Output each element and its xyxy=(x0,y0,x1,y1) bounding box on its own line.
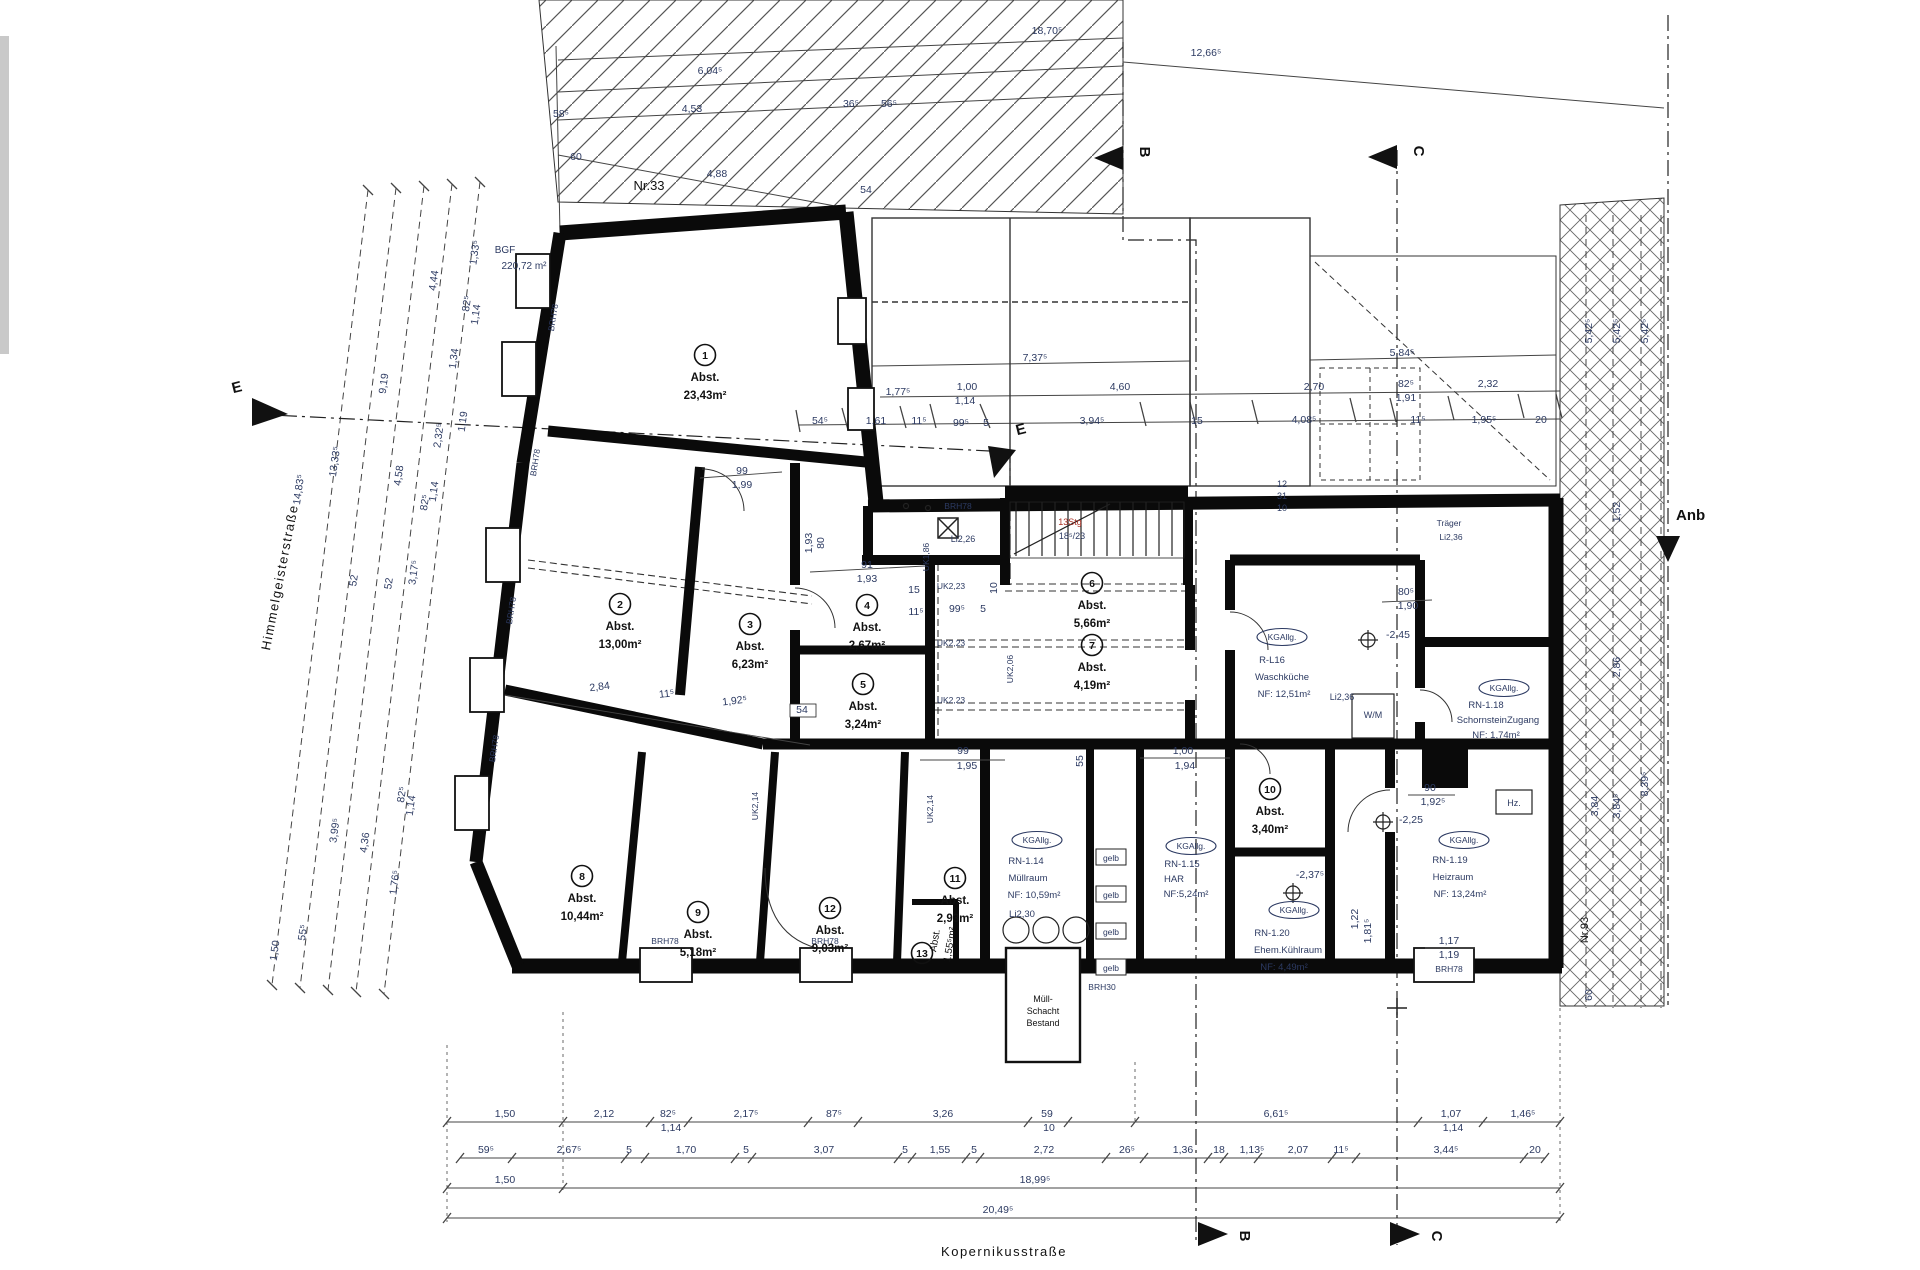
dim-label: 5,42⁵ xyxy=(1611,319,1623,344)
floor-plan-canvas: Himmelgeisterstraße Kopernikusstraße Anb… xyxy=(0,0,1920,1270)
note-label: gelb xyxy=(1103,853,1119,863)
section-marker-E: E xyxy=(230,378,288,426)
dim-label: 2,84 xyxy=(589,680,611,694)
dim-label: 6,04⁵ xyxy=(698,65,723,77)
dim-label: 5,84⁵ xyxy=(1390,347,1415,359)
room-number: 12 xyxy=(824,903,836,915)
dim-label: 6,61⁵ xyxy=(1264,1108,1289,1120)
dim-label: 80⁵ xyxy=(1398,586,1414,598)
dim-label: 4,58 xyxy=(392,464,407,486)
dim-label: 1,99 xyxy=(732,479,753,491)
space-line: NF: 4,49m² xyxy=(1260,962,1308,973)
dim-label: 15 xyxy=(908,584,920,596)
dim-label: 4,88 xyxy=(707,168,728,180)
space-label: KGAllg.RN-1.19HeizraumNF: 13,24m² xyxy=(1432,832,1489,901)
dim-label: 1,36 xyxy=(1173,1144,1194,1156)
dim-label: 52 xyxy=(382,577,396,590)
dim-label: 90 xyxy=(1424,782,1436,794)
dim-label: 11⁵ xyxy=(1333,1144,1348,1156)
note-label: gelb xyxy=(1103,927,1119,937)
dim-label: 1,50 xyxy=(268,939,283,961)
room-area: 13,00m² xyxy=(599,639,642,651)
valve-symbol xyxy=(1373,812,1393,832)
room-type: Abst. xyxy=(1078,600,1107,612)
space-line: Heizraum xyxy=(1433,872,1474,883)
room-type: Abst. xyxy=(684,929,713,941)
dim-label: 1,19 xyxy=(1439,949,1460,961)
dim-label: 1,00 xyxy=(1173,745,1194,757)
kg-allg-label: KGAllg. xyxy=(1023,835,1052,845)
dim-label: 55⁵ xyxy=(296,924,310,942)
room-area: 3,40m² xyxy=(1252,824,1289,836)
note-label: Li2,36 xyxy=(1439,532,1462,542)
space-line: RN-1.18 xyxy=(1468,700,1503,711)
courtyard-structures xyxy=(872,218,1556,486)
dim-label: 2,32 xyxy=(1478,378,1499,390)
kg-allg-label: KGAllg. xyxy=(1280,905,1309,915)
dim-label: 1,90 xyxy=(1398,600,1419,612)
dim-label: 2,72 xyxy=(1034,1144,1055,1156)
room-area: 2,93m² xyxy=(937,913,974,925)
dim-label: 1,19 xyxy=(456,410,471,432)
dim-label: 4,53 xyxy=(682,103,703,115)
dim-label: 11⁵ xyxy=(911,415,926,427)
dim-label: 59⁵ xyxy=(478,1144,494,1156)
room-label: 6Abst.5,66m² xyxy=(1074,573,1111,631)
room-type: Abst. xyxy=(816,925,845,937)
space-line: NF: 1,74m² xyxy=(1472,730,1520,741)
room-number: 3 xyxy=(747,619,753,631)
room-label: 7Abst.4,19m² xyxy=(1074,635,1111,693)
kg-allg-label: KGAllg. xyxy=(1450,835,1479,845)
note-label: UK1,86 xyxy=(921,543,931,572)
space-line: R-L16 xyxy=(1259,655,1285,666)
dim-label: 52 xyxy=(347,574,361,587)
dim-label: 2,17⁵ xyxy=(734,1108,759,1120)
dim-label: 1,14 xyxy=(469,303,484,325)
dim-label: 20,49⁵ xyxy=(983,1204,1014,1216)
dim-label: 54 xyxy=(860,184,872,196)
dim-label: 82⁵ xyxy=(660,1108,676,1120)
scrollbar-sliver[interactable] xyxy=(0,36,9,354)
room-label: 10Abst.3,40m² xyxy=(1252,779,1289,837)
section-marker-arrow xyxy=(988,446,1016,478)
dim-label: 54 xyxy=(796,704,808,716)
section-marker-letter: B xyxy=(1236,1231,1253,1242)
room-label: 2Abst.13,00m² xyxy=(599,594,642,652)
room-area: 4,19m² xyxy=(1074,680,1111,692)
dim-label: 1,91 xyxy=(1396,392,1417,404)
dim-label: 1,00 xyxy=(957,381,978,393)
room-label: 12Abst.9,03m² xyxy=(812,898,849,956)
dim-label: 12 xyxy=(1277,479,1287,489)
dim-label: 11⁵ xyxy=(658,687,675,701)
dim-label: 3,94⁵ xyxy=(1080,415,1105,427)
dim-label: 1,95 xyxy=(957,760,978,772)
dim-label: 1,95⁵ xyxy=(1472,414,1497,426)
dim-label: 59 xyxy=(1041,1108,1053,1120)
note-label: UK2,14 xyxy=(750,792,760,821)
room-type: Abst. xyxy=(691,372,720,384)
dim-label: 1,52 xyxy=(1611,502,1623,523)
dim-label: 54⁵ xyxy=(812,415,828,427)
valve-symbol xyxy=(1358,630,1378,650)
room-number: 8 xyxy=(579,871,585,883)
space-label: KGAllg.RN-1.18SchornsteinZugangNF: 1,74m… xyxy=(1457,680,1539,742)
dim-label: 1,14 xyxy=(404,794,419,816)
room-label: 4Abst.2,67m² xyxy=(849,595,886,653)
dim-label: 1,17 xyxy=(1439,935,1460,947)
dim-label: 5 xyxy=(983,417,989,429)
dim-label: 1,81⁵ xyxy=(1362,919,1374,944)
dim-label: 13,33⁵ xyxy=(327,446,343,478)
space-line: RN-1.14 xyxy=(1008,856,1043,867)
space-line: Li2,30 xyxy=(1009,909,1035,920)
room-number: 9 xyxy=(695,907,701,919)
kg-allg-label: KGAllg. xyxy=(1490,683,1519,693)
note-label: Abst. xyxy=(928,928,943,952)
note-label: Nr.33 xyxy=(633,178,664,193)
note-label: gelb xyxy=(1103,963,1119,973)
note-label: BRH78 xyxy=(1435,964,1463,974)
dim-label: 1,50 xyxy=(495,1108,516,1120)
room-area: 6,23m² xyxy=(732,659,769,671)
dim-label: 3,84⁵ xyxy=(1611,794,1623,819)
dim-label: 60 xyxy=(1583,989,1595,1001)
dim-label: 82⁵ xyxy=(1398,378,1414,390)
space-label: KGAllg.R-L16WaschkücheNF: 12,51m² xyxy=(1255,629,1310,701)
annex-label: Anb xyxy=(1676,507,1705,524)
dim-label: 99⁵ xyxy=(949,603,965,615)
space-label: KGAllg.RN-1.15HARNF:5,24m² xyxy=(1164,838,1216,901)
valve-symbol xyxy=(1283,883,1303,903)
dim-label: 15 xyxy=(1191,415,1203,427)
dim-label: 91 xyxy=(861,559,873,571)
section-marker-letter: E xyxy=(230,378,244,397)
dim-label: 58⁵ xyxy=(553,108,569,120)
dim-label: 2,32⁵ xyxy=(431,422,446,448)
note-label: W/M xyxy=(1364,710,1383,720)
section-marker-letter: B xyxy=(1136,147,1153,158)
dim-label: 56⁵ xyxy=(881,98,897,110)
dim-label: 5 xyxy=(902,1144,908,1156)
note-label: BRH78 xyxy=(944,501,972,511)
dim-label: 5 xyxy=(971,1144,977,1156)
room-area: 10,44m² xyxy=(561,911,604,923)
dim-label: 5 xyxy=(626,1144,632,1156)
dim-label: 1,46⁵ xyxy=(1511,1108,1536,1120)
note-label: BGF xyxy=(495,245,516,256)
dim-label: 3,26 xyxy=(933,1108,954,1120)
windows xyxy=(455,254,1474,1062)
section-marker-letter: C xyxy=(1428,1231,1445,1242)
room-type: Abst. xyxy=(736,641,765,653)
note-label: Müll- xyxy=(1033,994,1053,1004)
note-label: UK2,23 xyxy=(937,695,966,705)
dim-label: 18,70⁵ xyxy=(1032,25,1063,37)
note-label: UK2,06 xyxy=(1005,655,1015,684)
dim-label: 10 xyxy=(1043,1122,1055,1134)
room-number: 11 xyxy=(949,873,960,885)
dim-label: 4,08⁵ xyxy=(1292,414,1317,426)
dim-label: 20 xyxy=(1529,1144,1541,1156)
space-line: RN-1.15 xyxy=(1164,859,1199,870)
dim-label: 1,34 xyxy=(447,347,462,369)
space-line: HAR xyxy=(1164,874,1184,885)
dim-label: 2,70 xyxy=(1304,381,1325,393)
dim-label: 1,76⁵ xyxy=(387,869,402,895)
dim-label: -2,37⁵ xyxy=(1296,869,1324,881)
dim-label: 1,93 xyxy=(803,533,815,554)
note-label: UK2,14 xyxy=(925,795,935,824)
note-label: Li2,36 xyxy=(1330,692,1355,702)
dim-label: 1,50 xyxy=(495,1174,516,1186)
dim-label: 10 xyxy=(1277,503,1287,513)
dim-label: 1,13⁵ xyxy=(1240,1144,1265,1156)
note-label: UK2,23 xyxy=(937,638,966,648)
dim-label: 5 xyxy=(743,1144,749,1156)
dim-label: 3,07 xyxy=(814,1144,835,1156)
dim-label: 2,86 xyxy=(1611,657,1623,678)
note-label: Hz. xyxy=(1507,798,1521,808)
space-line: RN-1.20 xyxy=(1254,928,1289,939)
dim-label: -2,45 xyxy=(1386,629,1410,641)
room-area: 5,66m² xyxy=(1074,618,1111,630)
room-type: Abst. xyxy=(1256,806,1285,818)
note-label: UK2,23 xyxy=(937,581,966,591)
note-label: gelb xyxy=(1103,890,1119,900)
room-label: 8Abst.10,44m² xyxy=(561,866,604,924)
room-number: 2 xyxy=(617,599,623,611)
dim-label: 1,07 xyxy=(1441,1108,1462,1120)
dim-label: 31 xyxy=(1277,491,1287,501)
dim-label: 1,14 xyxy=(1443,1122,1464,1134)
room-label: 9Abst.5,18m² xyxy=(680,902,717,960)
dim-label: 7,37⁵ xyxy=(1023,352,1048,364)
dim-label: 2,67⁵ xyxy=(557,1144,582,1156)
dim-label: 99 xyxy=(957,745,969,757)
dim-label: 1,14 xyxy=(661,1122,682,1134)
dim-label: 36⁵ xyxy=(843,98,859,110)
note-label: Bestand xyxy=(1026,1018,1059,1028)
room-type: Abst. xyxy=(606,621,635,633)
dim-label: 18 xyxy=(1213,1144,1225,1156)
section-marker-C: C xyxy=(1390,1222,1445,1246)
street-bottom-label: Kopernikusstraße xyxy=(941,1244,1067,1259)
dim-label: 4,60 xyxy=(1110,381,1131,393)
space-line: Waschküche xyxy=(1255,672,1309,683)
room-number: 7 xyxy=(1089,640,1095,652)
section-marker-letter: C xyxy=(1410,146,1427,157)
note-label: BRH78 xyxy=(651,936,679,946)
dim-label: 3,44⁵ xyxy=(1434,1144,1459,1156)
note-label: 220,72 m² xyxy=(501,261,547,272)
dim-label: 99 xyxy=(736,465,748,477)
section-marker-arrow xyxy=(1390,1222,1420,1246)
dim-label: 1,22 xyxy=(1349,909,1361,930)
room-number: 1 xyxy=(702,350,708,362)
note-label: Träger xyxy=(1437,518,1462,528)
space-line: SchornsteinZugang xyxy=(1457,715,1539,726)
dim-label: 1,55 xyxy=(930,1144,951,1156)
room-label: 3Abst.6,23m² xyxy=(732,614,769,672)
dim-label: -2,25 xyxy=(1399,814,1423,826)
dim-label: 26⁵ xyxy=(1119,1144,1135,1156)
dim-label: 14,83⁵ xyxy=(291,474,307,506)
room-number: 10 xyxy=(1264,784,1276,796)
note-label: Schacht xyxy=(1027,1006,1060,1016)
muell-schacht-box xyxy=(1006,948,1080,1062)
dim-label: 8,39⁵ xyxy=(1639,772,1651,797)
section-marker-arrow xyxy=(1368,145,1397,169)
dim-label: 5,42⁵ xyxy=(1639,319,1651,344)
left-dim-chains xyxy=(267,177,485,999)
dim-label: 99⁵ xyxy=(953,417,969,429)
dim-label: 80 xyxy=(815,537,827,549)
space-label: KGAllg.RN-1.14MüllraumNF: 10,59m²Li2,30 xyxy=(1008,832,1062,921)
dim-label: 12,66⁵ xyxy=(1191,47,1222,59)
dim-label: 1,14 xyxy=(955,395,976,407)
section-marker-B: B xyxy=(1198,1222,1253,1246)
room-area: 23,43m² xyxy=(684,390,727,402)
dim-label: 1,94 xyxy=(1175,760,1196,772)
dim-label: 55 xyxy=(1074,755,1086,767)
dim-label: 4,44 xyxy=(427,269,442,291)
room-area: 2,67m² xyxy=(849,640,886,652)
dim-label: 10 xyxy=(988,582,1000,594)
room-area: 9,03m² xyxy=(812,943,849,955)
room-label: 5Abst.3,24m² xyxy=(845,674,882,732)
survey-cross xyxy=(1387,998,1407,1018)
dim-label: 1,93 xyxy=(857,573,878,585)
dim-label: 1,61 xyxy=(866,415,887,427)
space-line: NF:5,24m² xyxy=(1164,889,1209,900)
dim-label: 82⁵ xyxy=(418,494,432,512)
dim-label: 1,77⁵ xyxy=(886,386,911,398)
room-number: 13 xyxy=(916,948,928,960)
room-type: Abst. xyxy=(1078,662,1107,674)
section-marker-arrow xyxy=(1198,1222,1228,1246)
dim-label: 11⁵ xyxy=(908,606,923,618)
dim-label: 18,99⁵ xyxy=(1020,1174,1051,1186)
dim-label: 2,07 xyxy=(1288,1144,1309,1156)
room-area: 5,18m² xyxy=(680,947,717,959)
dim-label: 1,70 xyxy=(676,1144,697,1156)
dim-label: 1,92⁵ xyxy=(1421,796,1446,808)
room-number: 5 xyxy=(860,679,866,691)
note-label: 18⁵/23 xyxy=(1059,531,1085,541)
room-number: 6 xyxy=(1089,578,1095,590)
room-type: Abst. xyxy=(941,895,970,907)
note-label: Nr.93 xyxy=(1579,917,1591,943)
section-marker-arrow xyxy=(252,398,288,426)
street-left-label: Himmelgeisterstraße xyxy=(258,503,301,652)
dim-label: 5,42⁵ xyxy=(1583,319,1595,344)
space-line: NF: 10,59m² xyxy=(1008,890,1061,901)
space-line: Müllraum xyxy=(1008,873,1047,884)
space-line: NF: 13,24m² xyxy=(1434,889,1487,900)
note-label: 13Stg xyxy=(1058,517,1082,527)
note-label: Li2,26 xyxy=(951,534,976,544)
section-marker-E: E xyxy=(988,420,1028,478)
dim-label: 1,33⁵ xyxy=(467,239,482,265)
room-label: 1Abst.23,43m² xyxy=(684,345,727,403)
dim-label: 1,92⁵ xyxy=(722,694,748,709)
room-label: 11Abst.2,93m² xyxy=(937,868,974,926)
dim-label: 11⁵ xyxy=(1410,414,1425,426)
dim-label: 20 xyxy=(1535,414,1547,426)
room-number: 4 xyxy=(864,600,870,612)
dim-label: 5 xyxy=(980,603,986,615)
room-type: Abst. xyxy=(853,622,882,634)
room-type: Abst. xyxy=(849,701,878,713)
dim-label: 3,84 xyxy=(1589,796,1601,817)
kg-allg-label: KGAllg. xyxy=(1177,841,1206,851)
dim-label: 87⁵ xyxy=(826,1108,842,1120)
space-line: Ehem.Kühlraum xyxy=(1254,945,1322,956)
dim-label: 2,12 xyxy=(594,1108,615,1120)
room-type: Abst. xyxy=(568,893,597,905)
room-area: 3,24m² xyxy=(845,719,882,731)
kg-allg-label: KGAllg. xyxy=(1268,632,1297,642)
dim-label: 60 xyxy=(570,151,582,163)
dim-label: 3,99⁵ xyxy=(327,817,342,843)
note-label: BRH30 xyxy=(1088,982,1116,992)
dim-label: 3,17⁵ xyxy=(406,559,421,585)
space-line: RN-1.19 xyxy=(1432,855,1467,866)
space-line: NF: 12,51m² xyxy=(1258,689,1311,700)
dim-label: 4,36 xyxy=(358,831,373,853)
dim-label: 9,19 xyxy=(377,372,392,394)
